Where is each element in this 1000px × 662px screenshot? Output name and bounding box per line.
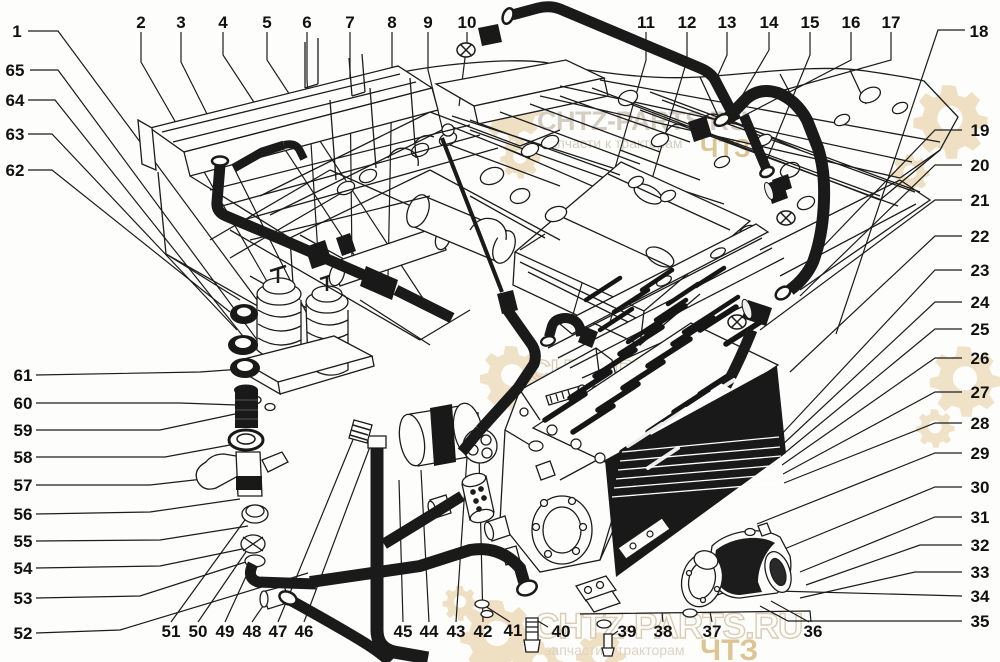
svg-text:8: 8 <box>387 13 396 32</box>
svg-text:32: 32 <box>971 536 990 555</box>
svg-text:11: 11 <box>637 13 655 32</box>
svg-text:запчасти к тракторам: запчасти к тракторам <box>545 642 685 658</box>
svg-text:39: 39 <box>618 622 637 641</box>
svg-text:61: 61 <box>14 366 33 385</box>
svg-text:44: 44 <box>420 622 439 641</box>
svg-text:33: 33 <box>971 563 990 582</box>
svg-text:34: 34 <box>971 587 990 606</box>
svg-text:46: 46 <box>295 622 314 641</box>
svg-text:50: 50 <box>189 622 208 641</box>
svg-text:17: 17 <box>882 13 901 32</box>
svg-text:14: 14 <box>760 13 779 32</box>
svg-text:57: 57 <box>14 476 33 495</box>
svg-text:65: 65 <box>6 61 25 80</box>
svg-text:43: 43 <box>447 622 466 641</box>
svg-text:4: 4 <box>218 13 228 32</box>
svg-text:36: 36 <box>804 622 823 641</box>
svg-text:12: 12 <box>678 13 697 32</box>
svg-text:51: 51 <box>162 622 181 641</box>
svg-text:1: 1 <box>12 22 21 41</box>
svg-text:49: 49 <box>216 622 235 641</box>
svg-text:31: 31 <box>971 508 990 527</box>
svg-text:53: 53 <box>14 589 33 608</box>
svg-text:7: 7 <box>345 13 354 32</box>
svg-text:45: 45 <box>394 622 413 641</box>
svg-text:55: 55 <box>14 532 33 551</box>
svg-text:48: 48 <box>243 622 262 641</box>
svg-text:23: 23 <box>971 261 990 280</box>
svg-text:6: 6 <box>302 13 311 32</box>
svg-text:18: 18 <box>970 22 989 41</box>
svg-text:24: 24 <box>971 293 990 312</box>
svg-text:62: 62 <box>6 161 25 180</box>
svg-text:29: 29 <box>971 444 990 463</box>
svg-text:26: 26 <box>971 349 990 368</box>
svg-text:22: 22 <box>971 227 990 246</box>
svg-text:20: 20 <box>971 156 990 175</box>
svg-text:5: 5 <box>262 13 271 32</box>
svg-text:10: 10 <box>458 13 477 32</box>
svg-text:42: 42 <box>474 622 493 641</box>
svg-text:9: 9 <box>423 13 432 32</box>
svg-text:47: 47 <box>269 622 288 641</box>
svg-text:35: 35 <box>971 612 990 631</box>
svg-text:21: 21 <box>971 191 990 210</box>
svg-text:52: 52 <box>14 624 33 643</box>
svg-text:25: 25 <box>971 320 990 339</box>
svg-text:37: 37 <box>703 622 722 641</box>
svg-text:60: 60 <box>14 394 33 413</box>
svg-text:3: 3 <box>176 13 185 32</box>
svg-text:63: 63 <box>6 125 25 144</box>
svg-text:13: 13 <box>718 13 737 32</box>
svg-text:16: 16 <box>842 13 861 32</box>
svg-text:58: 58 <box>14 448 33 467</box>
svg-text:40: 40 <box>552 622 571 641</box>
svg-text:27: 27 <box>971 383 990 402</box>
svg-text:30: 30 <box>971 478 990 497</box>
svg-text:15: 15 <box>801 13 820 32</box>
svg-text:64: 64 <box>6 91 25 110</box>
svg-text:38: 38 <box>654 622 673 641</box>
svg-text:54: 54 <box>14 559 33 578</box>
svg-text:59: 59 <box>14 421 33 440</box>
svg-text:28: 28 <box>971 414 990 433</box>
svg-text:41: 41 <box>504 621 523 640</box>
svg-text:19: 19 <box>971 121 990 140</box>
svg-text:2: 2 <box>136 13 145 32</box>
svg-text:56: 56 <box>14 505 33 524</box>
